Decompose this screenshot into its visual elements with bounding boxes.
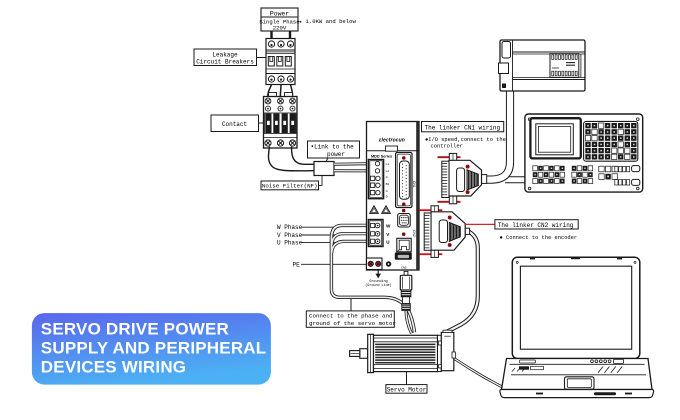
svg-text:U Phase: U Phase <box>277 240 303 247</box>
svg-text:εlectrocun: εlectrocun <box>379 138 405 144</box>
svg-text:Connect to the phase and: Connect to the phase and <box>309 313 393 320</box>
svg-text:Noise Filter(NF): Noise Filter(NF) <box>262 183 318 190</box>
svg-text:SERVO DRIVE POWER: SERVO DRIVE POWER <box>41 319 229 338</box>
svg-text:PE: PE <box>293 262 301 269</box>
svg-text:P: P <box>386 176 388 180</box>
svg-text:1.0KW and below: 1.0KW and below <box>306 18 357 25</box>
svg-text:(Ground Line): (Ground Line) <box>365 283 391 288</box>
svg-text:W: W <box>386 224 391 229</box>
svg-text:CN5: CN5 <box>401 266 407 269</box>
svg-text:SUPPLY AND PERIPHERAL: SUPPLY AND PERIPHERAL <box>41 338 267 357</box>
svg-text:CN2: CN2 <box>412 230 416 237</box>
svg-text:controller: controller <box>431 143 463 149</box>
svg-text:● Connect to the encoder: ● Connect to the encoder <box>500 235 578 241</box>
svg-text:•Link to the: •Link to the <box>311 144 355 151</box>
svg-text:W Phase: W Phase <box>277 224 303 231</box>
svg-text:●I/O speed,connect to the: ●I/O speed,connect to the <box>425 137 506 143</box>
svg-text:B1: B1 <box>386 182 390 186</box>
svg-text:L1: L1 <box>386 162 390 166</box>
svg-text:The linker CN1 wiring: The linker CN1 wiring <box>425 124 501 131</box>
svg-text:power: power <box>327 151 345 158</box>
svg-text:Power: Power <box>270 10 289 17</box>
svg-text:DEVICES WIRING: DEVICES WIRING <box>41 357 186 376</box>
svg-text:ground of the servo motor: ground of the servo motor <box>309 320 396 327</box>
svg-text:The linker CN2 wiring: The linker CN2 wiring <box>498 222 574 229</box>
svg-text:V Phase: V Phase <box>277 232 303 239</box>
svg-text:Contact: Contact <box>222 121 247 128</box>
svg-text:220V: 220V <box>273 25 287 32</box>
svg-text:MDD Series: MDD Series <box>371 155 392 159</box>
svg-text:L2: L2 <box>386 169 390 173</box>
svg-text:Leakage: Leakage <box>212 52 238 59</box>
svg-text:★: ★ <box>299 19 302 25</box>
svg-text:Circuit Breakers: Circuit Breakers <box>196 59 254 66</box>
svg-text:CN1: CN1 <box>412 181 416 188</box>
svg-text:Servo Motor: Servo Motor <box>387 387 427 394</box>
